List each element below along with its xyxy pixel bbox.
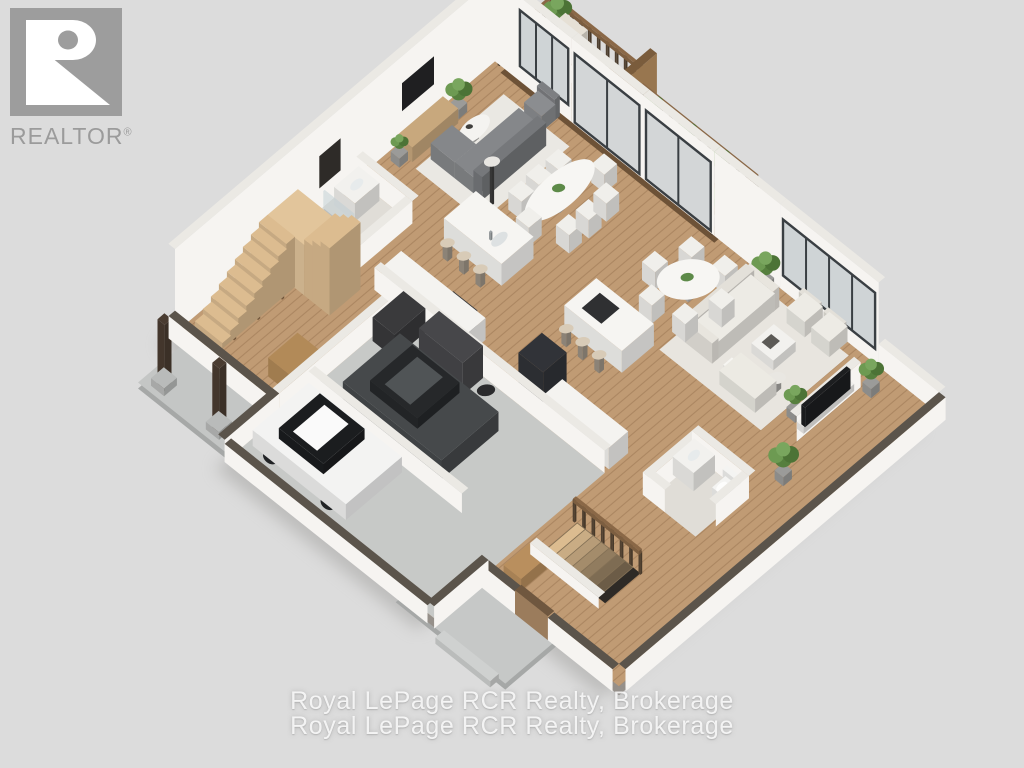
island-1-faucet [489, 230, 492, 240]
realtor-logo: REALTOR® [10, 8, 140, 150]
watermark-line-2: Royal LePage RCR Realty, Brokerage [0, 712, 1024, 741]
realtor-r-stem [26, 20, 51, 105]
realtor-label: REALTOR® [10, 123, 140, 150]
registered-mark: ® [124, 126, 133, 138]
floor-plan-scene [0, 0, 1024, 768]
realtor-logo-mark [10, 8, 122, 116]
realtor-label-text: REALTOR [10, 123, 124, 149]
screenshot-stage: REALTOR® Royal LePage RCR Realty, Broker… [0, 0, 1024, 768]
realtor-r-counter [58, 31, 78, 50]
